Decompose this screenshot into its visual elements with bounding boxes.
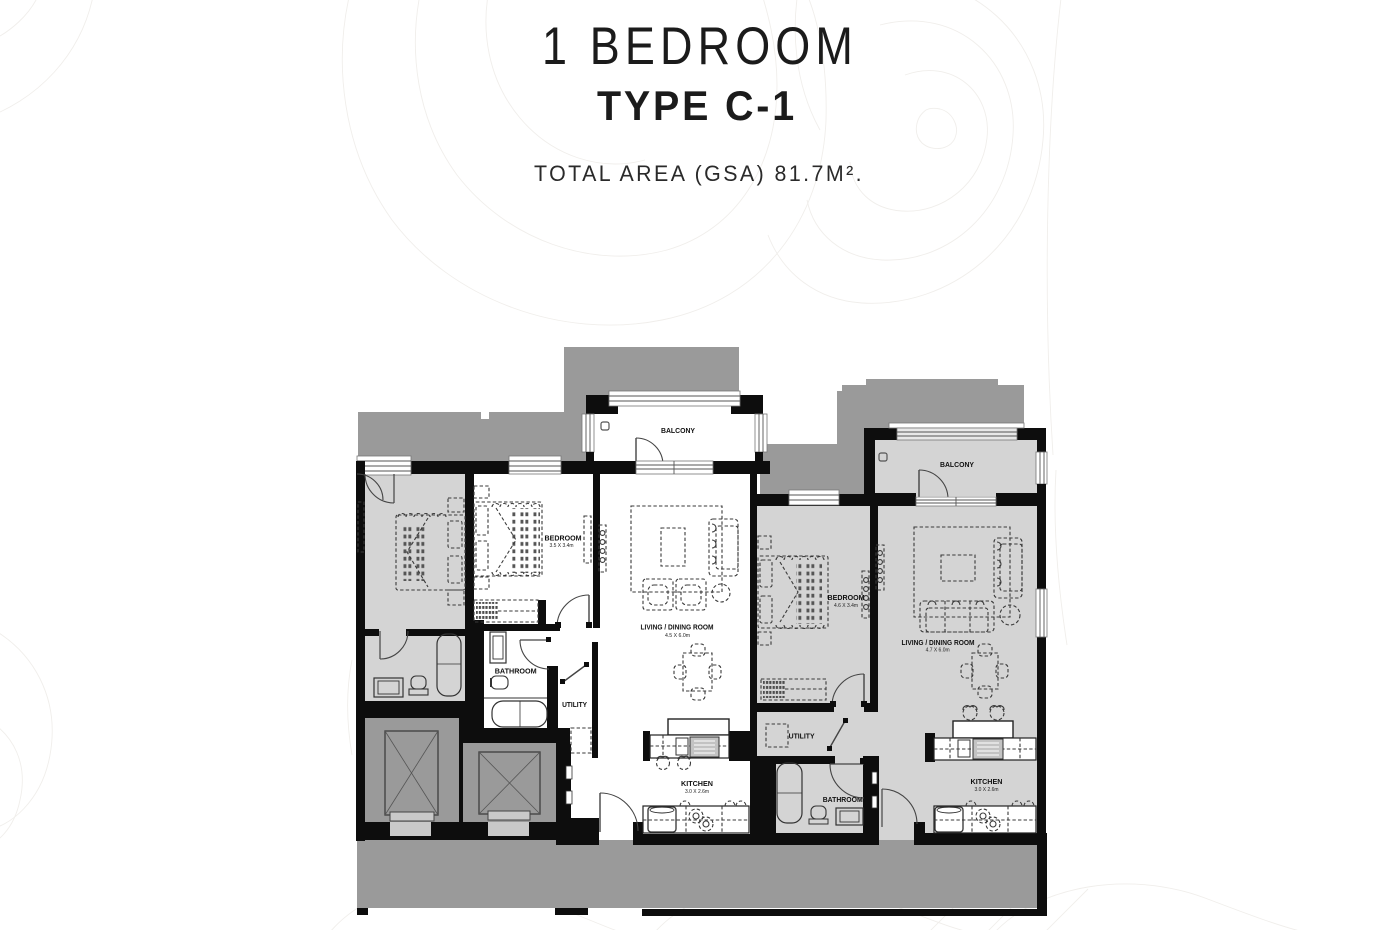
svg-text:BALCONY: BALCONY [940, 460, 974, 469]
svg-text:4.5 X 6.0m: 4.5 X 6.0m [665, 633, 690, 639]
svg-text:1 BEDROOM: 1 BEDROOM [542, 17, 858, 76]
svg-text:TOTAL AREA (GSA) 81.7M².: TOTAL AREA (GSA) 81.7M². [534, 161, 864, 186]
svg-text:TYPE C-1: TYPE C-1 [597, 82, 797, 129]
svg-text:4.7 X 6.0m: 4.7 X 6.0m [926, 648, 950, 654]
svg-text:3.5 X 3.4m: 3.5 X 3.4m [550, 543, 574, 549]
svg-text:BALCONY: BALCONY [661, 426, 695, 435]
svg-text:KITCHEN: KITCHEN [681, 779, 713, 788]
svg-text:UTILITY: UTILITY [562, 700, 587, 709]
svg-text:BATHROOM: BATHROOM [495, 667, 537, 676]
svg-text:BEDROOM: BEDROOM [828, 593, 865, 602]
svg-text:3.0 X 2.6m: 3.0 X 2.6m [975, 787, 999, 793]
svg-text:UTILITY: UTILITY [789, 732, 815, 741]
svg-text:BEDROOM: BEDROOM [545, 534, 582, 543]
svg-text:LIVING / DINING ROOM: LIVING / DINING ROOM [641, 623, 714, 632]
svg-text:KITCHEN: KITCHEN [971, 777, 1003, 786]
svg-text:BATHROOM: BATHROOM [823, 795, 863, 804]
svg-text:4.6 X 3.4m: 4.6 X 3.4m [834, 603, 858, 609]
svg-text:3.0 X 2.6m: 3.0 X 2.6m [685, 789, 709, 795]
svg-text:LIVING / DINING ROOM: LIVING / DINING ROOM [902, 638, 975, 647]
